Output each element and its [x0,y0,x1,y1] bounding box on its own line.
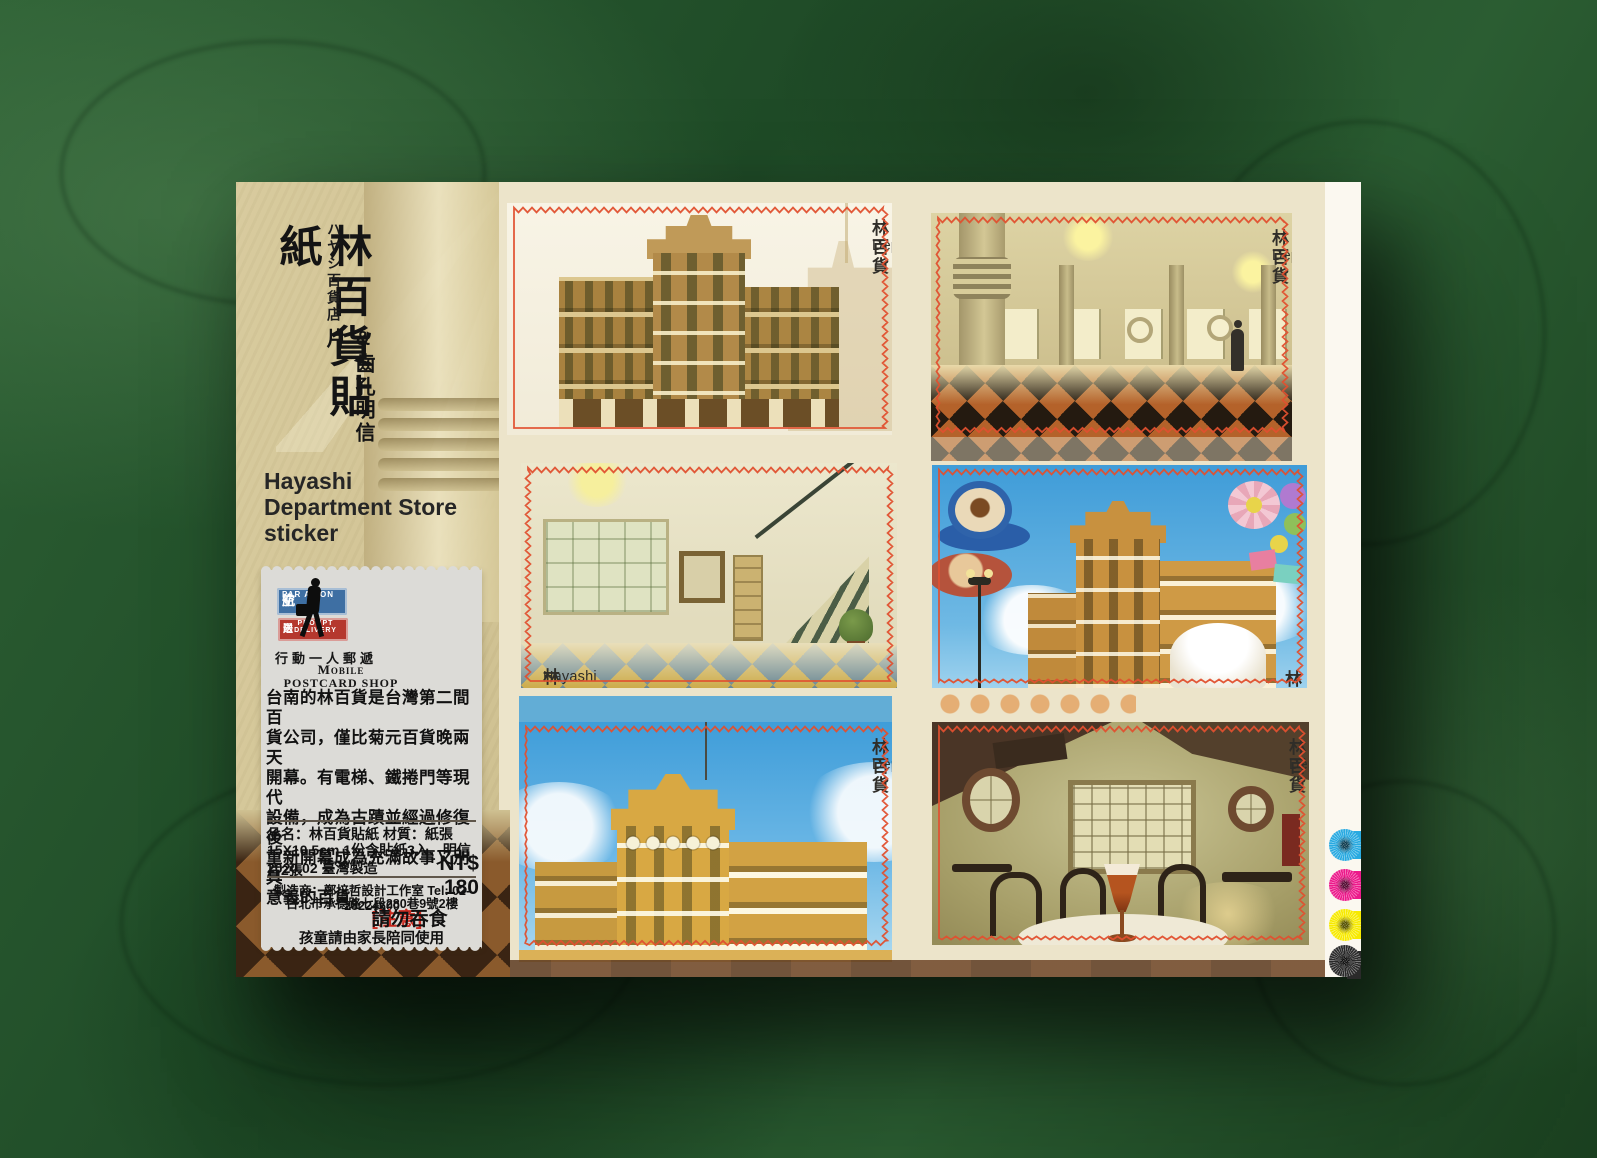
round-window-art [962,768,1020,832]
yellow-circle-mark [1329,909,1361,941]
person-silhouette-art [1231,329,1244,371]
candy-ball-art [1284,513,1306,535]
parfait-glass-foot-art [1108,934,1136,942]
checker-bleed [931,435,1292,461]
building-pediment-art [1070,501,1166,543]
building-wing-art [535,862,617,950]
shaved-ice-art [1170,623,1266,688]
stamp-cafe-interior: 林百貨 Hayashi Department Store [932,722,1309,945]
round-window-art [1228,786,1274,832]
walking-postman-silhouette-icon [299,578,329,644]
title-en-line2: Department Store [264,494,457,520]
stair-railing-art [755,463,858,539]
stamp-label-en: Hayashi Department Store [1272,229,1292,283]
window-wall-art [543,519,669,615]
stamp-label-en: Hayashi Department Store [872,219,892,273]
lamp-glow-art [565,463,629,507]
divider [267,876,476,878]
building-arcade-art [559,399,839,427]
window-art [1068,780,1196,874]
parfait-glass-stem-art [1120,910,1124,936]
sheet-title-english: Hayashi Department Store sticker [264,468,479,520]
sheet-subtitle-japanese: ハヤシ百貨店 [324,222,344,342]
product-info-box: 空 航 PAR AVION 送 限 PROMPT DELIVERY 行動一人郵遞… [261,570,482,947]
sheet-subtitle-vertical: &齒孔明信片 [320,328,378,460]
cyan-circle-mark [1329,829,1361,861]
wall-poster-art [1282,814,1300,866]
door-art [733,555,763,641]
awning-bleed [491,960,1325,977]
sky-bleed [519,696,892,724]
candy-ball-art [1280,483,1306,509]
stamp-label-en: Hayashi Department Store [872,738,892,792]
stamp-label-en: Hayashi Department Store [1285,670,1307,688]
building-wing-art [1028,593,1076,688]
porthole-band-art [623,834,723,852]
street-lamp-art [978,583,981,688]
stamp-facade: 林百貨 Hayashi Department Store [507,203,892,435]
building-pediment-art [611,774,735,830]
ceiling-beam-art [1142,722,1309,780]
stamp-label-en: Hayashi Department Store [1289,738,1309,792]
postman-briefcase [296,604,310,616]
stamp-lobby-stairs: 林百貨 Hayashi Department Store [521,463,897,688]
stamp-corner-building: 林百貨 Hayashi Department Store [519,722,892,950]
divider [267,820,476,822]
stamp-label-en: Hayashi Department Store [543,668,621,688]
stamp-building-sweets: 林百貨 Hayashi Department Store [932,465,1307,688]
candy-cube-art [1273,564,1301,585]
building-wing-art [729,842,867,950]
flower-pastry-art [1228,481,1280,529]
table-silhouette-art [952,864,1012,872]
photo-backdrop: { "sheet": { "sidebar": { "title_vertica… [0,0,1597,1158]
lamp-glow-art [1061,213,1115,261]
building-tower-art [1076,539,1160,688]
title-en-line3: sticker [264,520,338,546]
table-silhouette-art [1222,872,1292,882]
candy-cube-art [1249,549,1277,570]
postman-leg [313,611,324,637]
parfait-glass-art [1104,864,1140,912]
picture-frame-art [679,551,725,603]
porthole-window-art [1207,315,1233,341]
faded-spire-art [845,203,848,263]
fruit-bleed [936,690,1136,718]
stamp-interior-hall: 林百貨 Hayashi Department Store [931,213,1292,437]
plant-art [839,609,873,643]
flag-pole-art [705,722,707,780]
checkered-floor-art [931,365,1292,437]
magenta-circle-mark [1329,869,1361,901]
black-circle-mark [1329,945,1361,977]
warning-children-row: 孩童請由家長陪同使用 [261,927,482,948]
porthole-window-art [1127,317,1153,343]
coffee-latte-art [948,481,1012,539]
title-en-line1: Hayashi [264,468,352,494]
sticker-sheet: 林百貨貼紙 ハヤシ百貨店 &齒孔明信片 Hayashi Department S… [236,182,1361,977]
